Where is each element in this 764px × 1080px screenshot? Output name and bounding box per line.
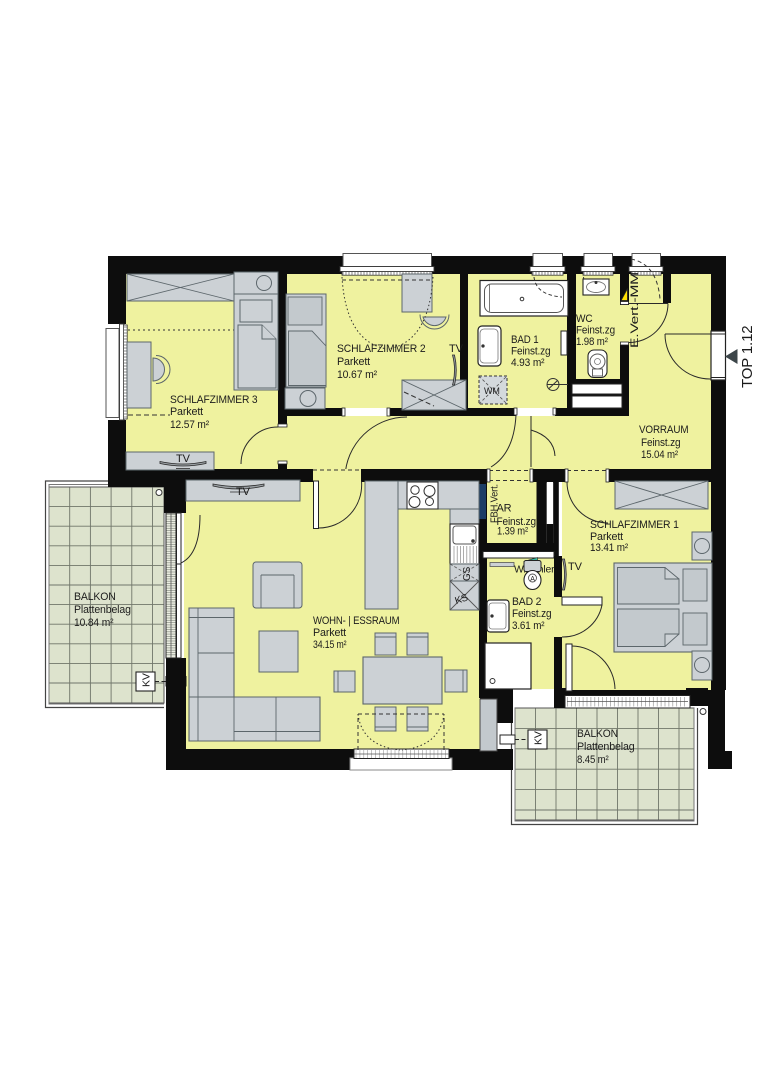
- svg-text:WM: WM: [484, 386, 500, 396]
- svg-text:Plattenbelag: Plattenbelag: [74, 604, 131, 616]
- svg-text:10.84 m²: 10.84 m²: [74, 617, 114, 629]
- svg-text:WOHN- | ESSRAUM: WOHN- | ESSRAUM: [313, 615, 399, 627]
- svg-text:1.98 m²: 1.98 m²: [576, 336, 608, 348]
- svg-text:12.57 m²: 12.57 m²: [170, 419, 209, 431]
- svg-text:3.61 m²: 3.61 m²: [512, 620, 545, 632]
- svg-text:KV: KV: [141, 673, 153, 687]
- svg-text:34.15 m²: 34.15 m²: [313, 639, 347, 651]
- svg-text:BALKON: BALKON: [577, 728, 618, 740]
- svg-text:TV: TV: [568, 561, 583, 573]
- svg-text:13.41 m²: 13.41 m²: [590, 542, 628, 554]
- svg-text:KV: KV: [533, 731, 545, 745]
- svg-text:BAD 2: BAD 2: [512, 596, 541, 608]
- svg-text:Feinst.zg: Feinst.zg: [511, 346, 551, 358]
- svg-text:A: A: [530, 576, 535, 583]
- svg-text:10.67 m²: 10.67 m²: [337, 369, 377, 381]
- svg-text:SCHLAFZIMMER 1: SCHLAFZIMMER 1: [590, 519, 679, 531]
- svg-text:Parkett: Parkett: [313, 627, 346, 639]
- svg-text:Plattenbelag: Plattenbelag: [577, 741, 635, 753]
- svg-text:8.45 m²: 8.45 m²: [577, 754, 609, 766]
- svg-text:1.39 m²: 1.39 m²: [497, 526, 528, 538]
- svg-text:SCHLAFZIMMER 3: SCHLAFZIMMER 3: [170, 394, 258, 406]
- svg-text:TV: TV: [449, 343, 464, 355]
- svg-text:TOP 1.12: TOP 1.12: [739, 326, 756, 388]
- svg-text:Feinst.zg: Feinst.zg: [576, 325, 615, 337]
- svg-text:VORRAUM: VORRAUM: [639, 424, 688, 436]
- svg-text:BAD 1: BAD 1: [511, 334, 539, 346]
- svg-text:SCHLAFZIMMER 2: SCHLAFZIMMER 2: [337, 343, 426, 355]
- svg-text:Feinst.zg: Feinst.zg: [512, 608, 552, 620]
- svg-text:15.04 m²: 15.04 m²: [641, 449, 678, 461]
- svg-text:FBH.Vert.: FBH.Vert.: [490, 484, 501, 523]
- svg-text:Parkett: Parkett: [170, 406, 203, 418]
- svg-text:Parkett: Parkett: [337, 356, 370, 368]
- svg-text:4.93 m²: 4.93 m²: [511, 357, 545, 369]
- svg-text:WC: WC: [576, 313, 593, 325]
- svg-text:TV: TV: [176, 453, 191, 465]
- svg-text:BALKON: BALKON: [74, 591, 116, 603]
- svg-text:Feinst.zg: Feinst.zg: [641, 437, 681, 449]
- svg-text:GS: GS: [462, 566, 473, 581]
- svg-text:E.Vert.-MM: E.Vert.-MM: [629, 272, 641, 348]
- svg-text:TV: TV: [236, 486, 251, 498]
